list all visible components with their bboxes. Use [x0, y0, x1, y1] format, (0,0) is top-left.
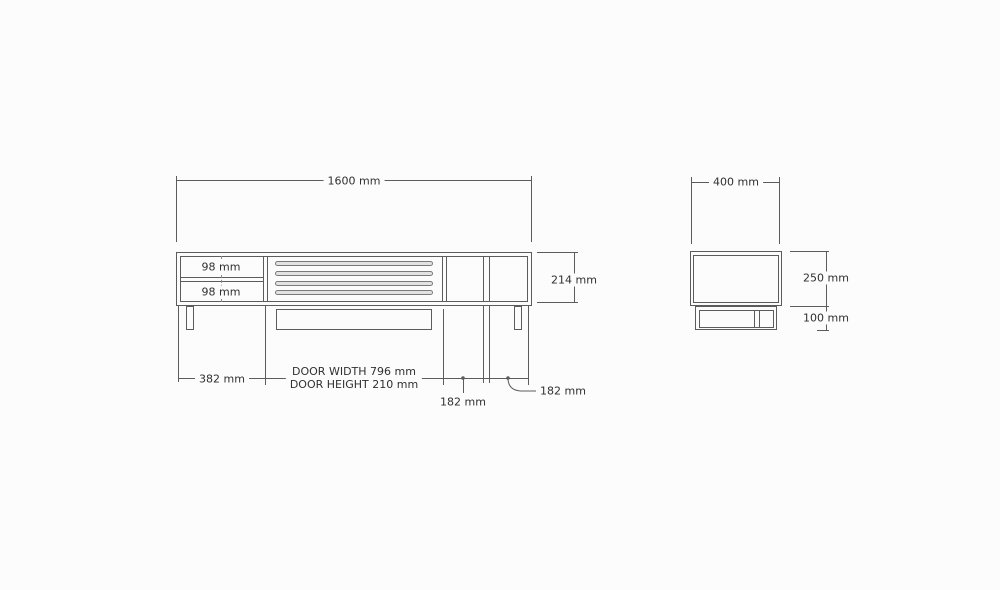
dim-body-height-label: 250 mm: [799, 272, 853, 285]
dim-depth-label: 400 mm: [709, 176, 763, 189]
dim-width-label: 1600 mm: [324, 175, 385, 188]
dim-drawer-top-label: 98 mm: [198, 261, 245, 274]
dim-gap1-label: 182 mm: [436, 396, 490, 409]
dim-drawer-bottom-label: 98 mm: [198, 286, 245, 299]
furniture-dimension-drawing: 1600 mm 98 mm 98 mm 214 mm 382 mm DOOR W…: [0, 0, 1000, 590]
door-width-note-line: DOOR WIDTH 796 mm: [290, 365, 418, 378]
door-size-note: DOOR WIDTH 796 mm DOOR HEIGHT 210 mm: [286, 365, 422, 391]
dim-height-label: 214 mm: [547, 274, 601, 287]
door-height-note-line: DOOR HEIGHT 210 mm: [290, 378, 418, 391]
dim-gap2-label: 182 mm: [536, 385, 590, 398]
labels: 1600 mm 98 mm 98 mm 214 mm 382 mm DOOR W…: [0, 0, 1000, 590]
dim-base-height-label: 100 mm: [799, 312, 853, 325]
dim-left-section-label: 382 mm: [195, 373, 249, 386]
